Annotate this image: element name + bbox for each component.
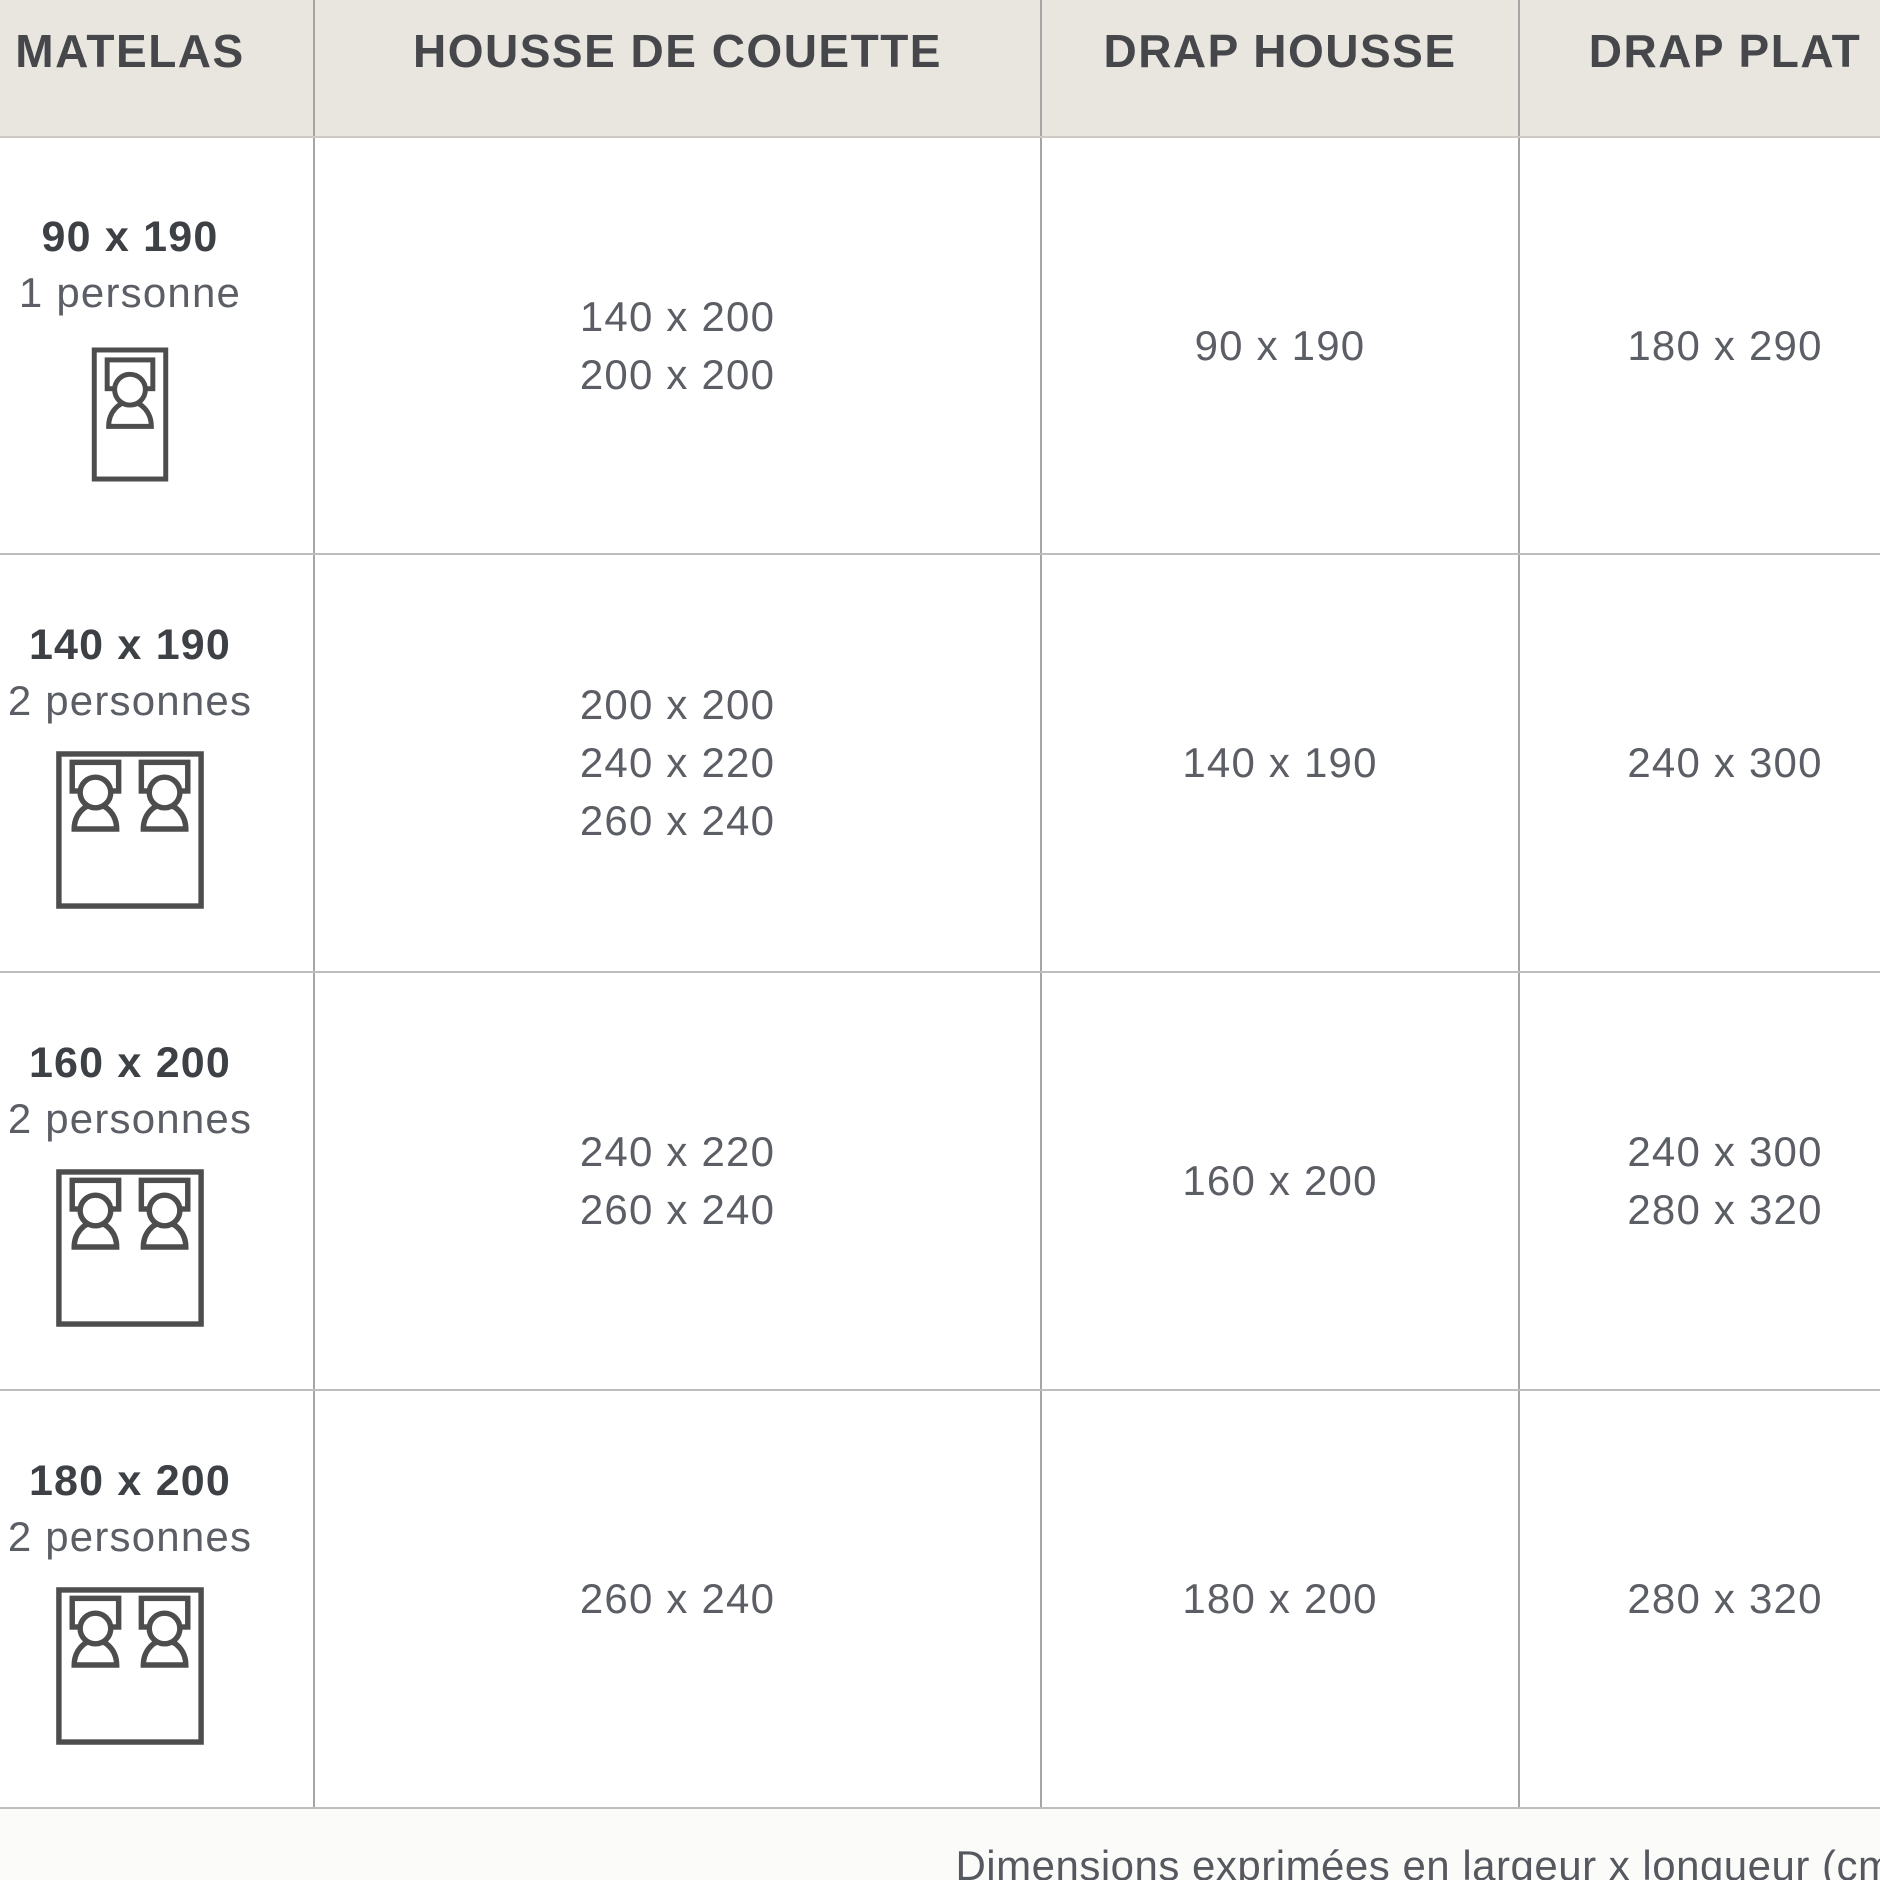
drap-plat-cell: 240 x 300 280 x 320 <box>1520 973 1880 1389</box>
size-value: 160 x 200 <box>1182 1152 1377 1210</box>
size-value: 200 x 200 <box>580 676 775 734</box>
size-value: 280 x 320 <box>1627 1570 1822 1628</box>
column-header-drap-plat: DRAP PLAT <box>1520 0 1880 136</box>
double-bed-icon <box>55 1587 205 1745</box>
column-header-label: DRAP HOUSSE <box>1103 24 1456 78</box>
drap-housse-cell: 90 x 190 <box>1042 138 1520 553</box>
drap-housse-cell: 140 x 190 <box>1042 555 1520 971</box>
drap-plat-cell: 240 x 300 <box>1520 555 1880 971</box>
mattress-size: 180 x 200 <box>29 1453 231 1509</box>
matelas-cell: 180 x 200 2 personnes <box>0 1391 315 1807</box>
table-row: 90 x 190 1 personne 140 x 200 200 x 200 … <box>0 138 1880 555</box>
bed-linen-size-chart: MATELAS HOUSSE DE COUETTE DRAP HOUSSE DR… <box>0 0 1880 1880</box>
single-bed-icon <box>91 347 169 482</box>
size-value: 140 x 190 <box>1182 734 1377 792</box>
housse-de-couette-cell: 200 x 200 240 x 220 260 x 240 <box>315 555 1042 971</box>
size-value: 260 x 240 <box>580 1181 775 1239</box>
column-header-housse-de-couette: HOUSSE DE COUETTE <box>315 0 1042 136</box>
drap-housse-cell: 180 x 200 <box>1042 1391 1520 1807</box>
drap-housse-cell: 160 x 200 <box>1042 973 1520 1389</box>
size-value: 240 x 220 <box>580 1123 775 1181</box>
size-value: 180 x 200 <box>1182 1570 1377 1628</box>
matelas-cell: 140 x 190 2 personnes <box>0 555 315 971</box>
size-value: 200 x 200 <box>580 346 775 404</box>
size-value: 260 x 240 <box>580 792 775 850</box>
size-value: 180 x 290 <box>1627 317 1822 375</box>
mattress-size: 160 x 200 <box>29 1035 231 1091</box>
size-value: 140 x 200 <box>580 288 775 346</box>
double-bed-icon <box>55 1169 205 1327</box>
drap-plat-cell: 280 x 320 <box>1520 1391 1880 1807</box>
column-header-label: DRAP PLAT <box>1589 24 1861 78</box>
persons-label: 1 personne <box>19 265 241 321</box>
column-header-matelas: MATELAS <box>0 0 315 136</box>
matelas-cell: 160 x 200 2 personnes <box>0 973 315 1389</box>
size-table: MATELAS HOUSSE DE COUETTE DRAP HOUSSE DR… <box>0 0 1880 1809</box>
size-value: 240 x 300 <box>1627 1123 1822 1181</box>
table-row: 140 x 190 2 personnes 200 x 200 240 x 22… <box>0 555 1880 973</box>
column-header-label: HOUSSE DE COUETTE <box>413 24 942 78</box>
size-value: 90 x 190 <box>1195 317 1366 375</box>
mattress-size: 140 x 190 <box>29 617 231 673</box>
drap-plat-cell: 180 x 290 <box>1520 138 1880 553</box>
persons-label: 2 personnes <box>8 1091 252 1147</box>
mattress-size: 90 x 190 <box>42 209 219 265</box>
size-value: 240 x 220 <box>580 734 775 792</box>
size-value: 260 x 240 <box>580 1570 775 1628</box>
column-header-drap-housse: DRAP HOUSSE <box>1042 0 1520 136</box>
matelas-cell: 90 x 190 1 personne <box>0 138 315 553</box>
column-header-label: MATELAS <box>15 24 244 78</box>
housse-de-couette-cell: 240 x 220 260 x 240 <box>315 973 1042 1389</box>
size-value: 280 x 320 <box>1627 1181 1822 1239</box>
table-row: 160 x 200 2 personnes 240 x 220 260 x 24… <box>0 973 1880 1391</box>
table-header-row: MATELAS HOUSSE DE COUETTE DRAP HOUSSE DR… <box>0 0 1880 138</box>
housse-de-couette-cell: 140 x 200 200 x 200 <box>315 138 1042 553</box>
persons-label: 2 personnes <box>8 1509 252 1565</box>
table-row: 180 x 200 2 personnes 260 x 240 180 x 20… <box>0 1391 1880 1809</box>
size-value: 240 x 300 <box>1627 734 1822 792</box>
housse-de-couette-cell: 260 x 240 <box>315 1391 1042 1807</box>
persons-label: 2 personnes <box>8 673 252 729</box>
double-bed-icon <box>55 751 205 909</box>
dimensions-footnote: Dimensions exprimées en largeur x longue… <box>0 1809 1880 1880</box>
